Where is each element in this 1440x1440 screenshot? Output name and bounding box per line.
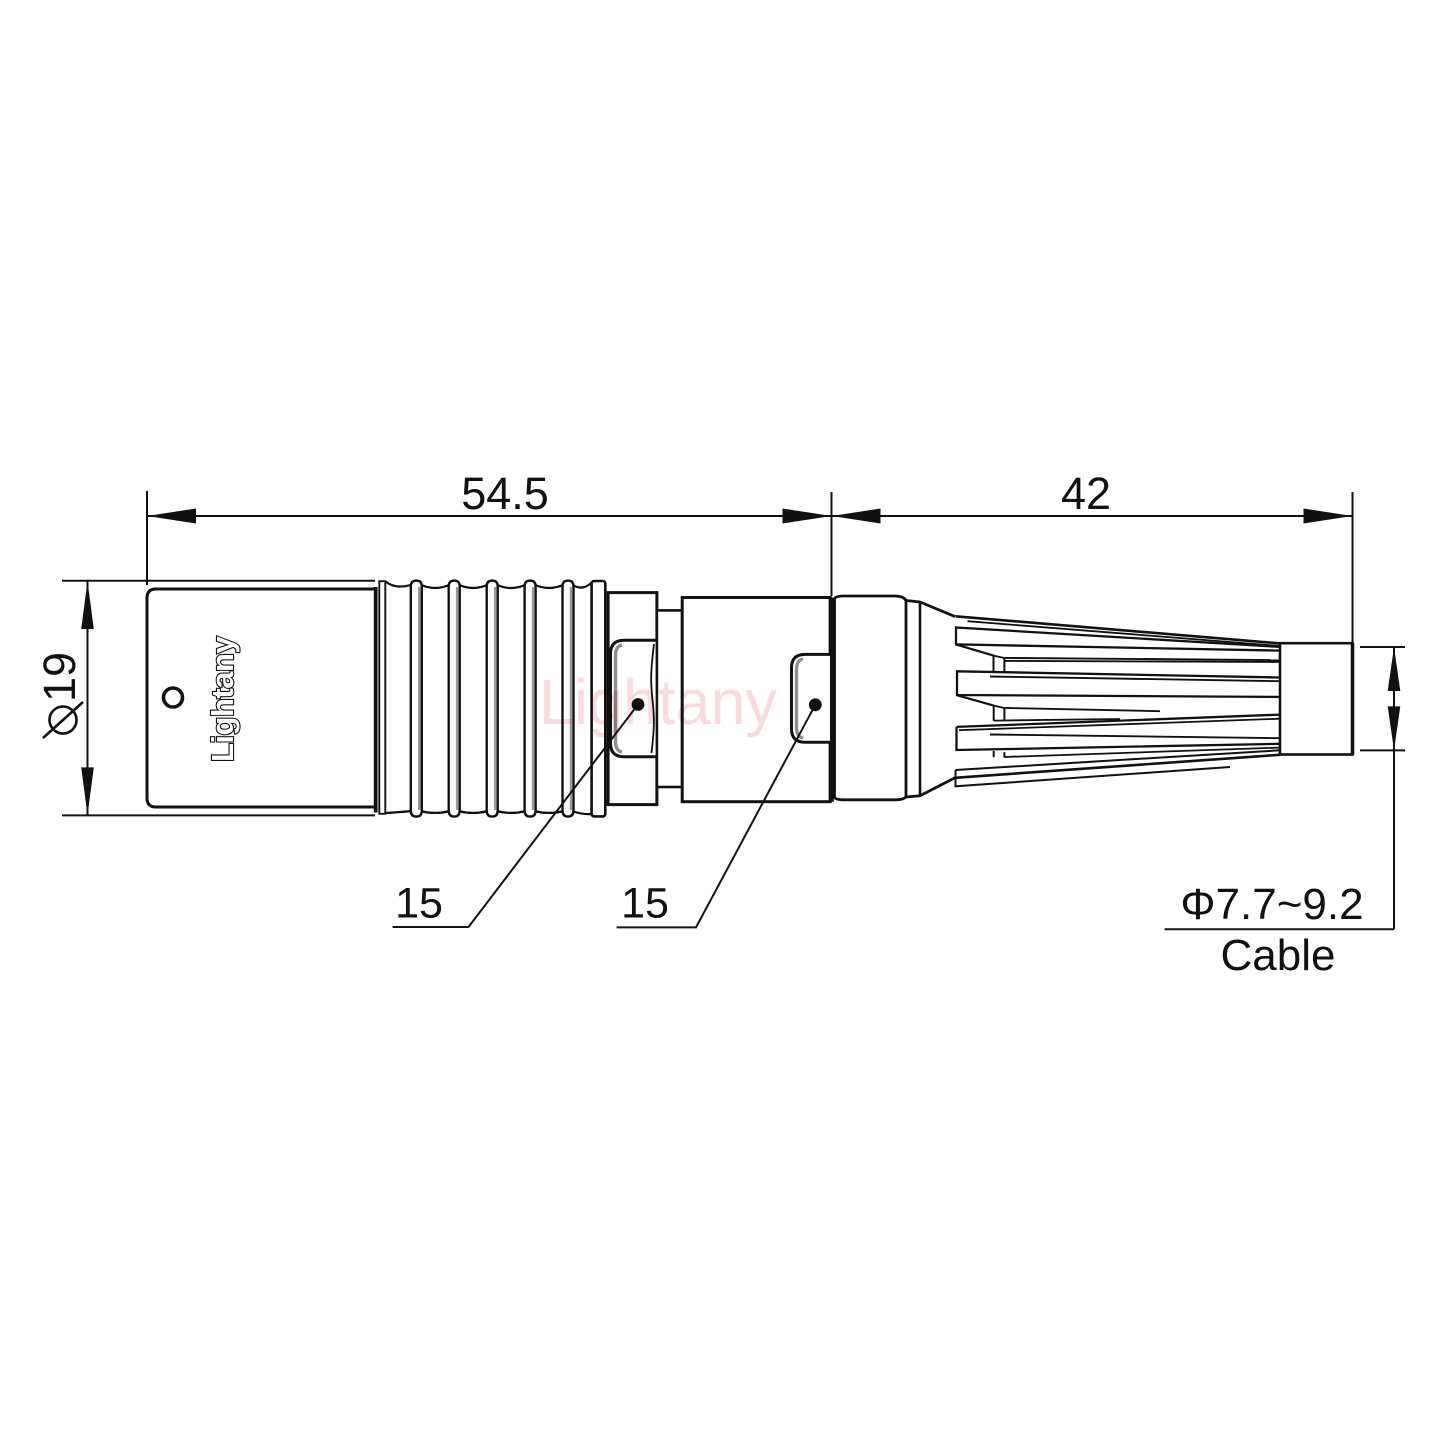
svg-text:42: 42 — [1061, 468, 1111, 519]
svg-text:19: 19 — [34, 652, 85, 702]
svg-text:15: 15 — [621, 880, 669, 928]
svg-text:54.5: 54.5 — [461, 468, 549, 519]
svg-text:Lightany: Lightany — [205, 636, 240, 762]
svg-text:Cable: Cable — [1221, 931, 1336, 980]
svg-text:Lightany: Lightany — [539, 666, 777, 738]
svg-text:Φ7.7~9.2: Φ7.7~9.2 — [1180, 880, 1363, 929]
svg-text:15: 15 — [395, 880, 443, 928]
